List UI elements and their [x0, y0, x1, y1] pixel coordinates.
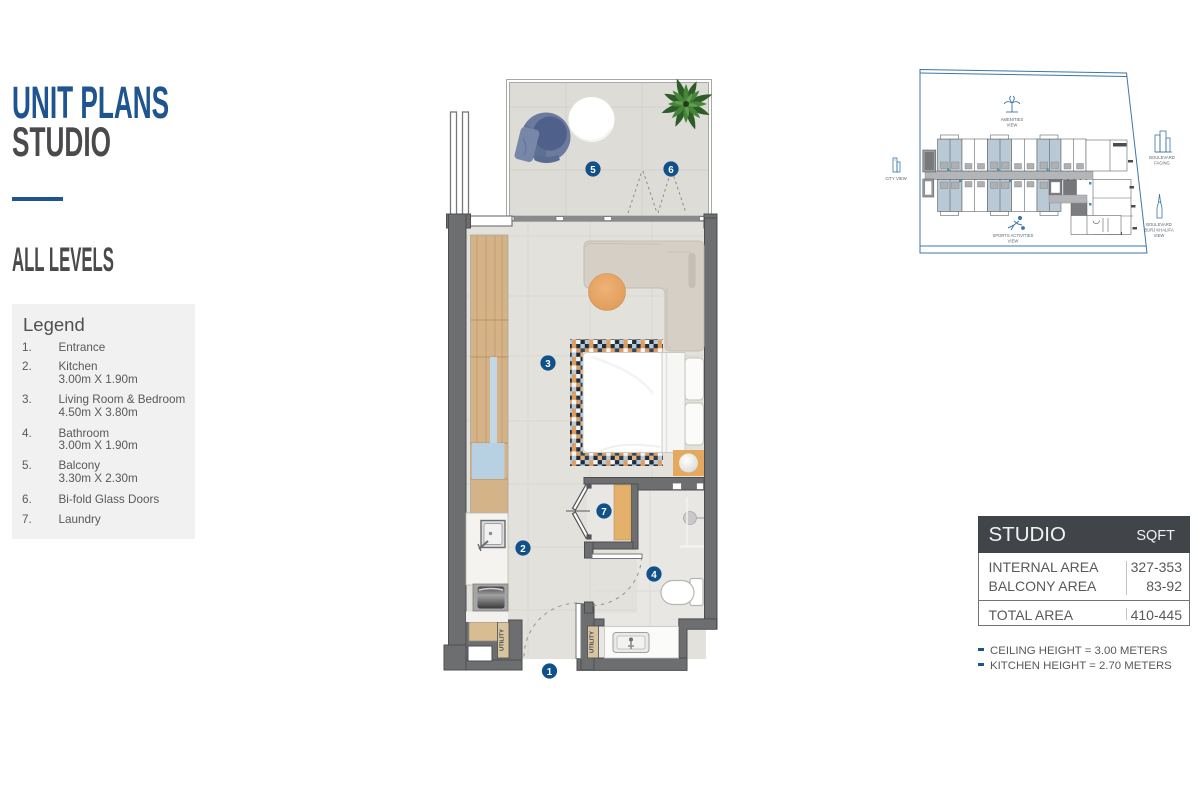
svg-text:AMENITIES: AMENITIES	[1001, 117, 1024, 122]
svg-text:SPORTS ACTIVITIES: SPORTS ACTIVITIES	[993, 233, 1034, 238]
svg-text:BOULEVARD: BOULEVARD	[1149, 155, 1175, 160]
svg-text:6: 6	[668, 165, 674, 176]
svg-text:CITY VIEW: CITY VIEW	[885, 176, 906, 181]
svg-text:2: 2	[520, 544, 526, 555]
svg-text:VIEW: VIEW	[1008, 239, 1019, 244]
svg-text:7: 7	[601, 507, 607, 518]
svg-text:VIEW: VIEW	[1154, 233, 1165, 238]
svg-text:VIEW: VIEW	[1007, 123, 1018, 128]
svg-text:UTILITY: UTILITY	[589, 631, 595, 653]
svg-text:FACING: FACING	[1154, 161, 1170, 166]
svg-text:BOULEVARD: BOULEVARD	[1146, 222, 1172, 227]
svg-text:5: 5	[590, 165, 596, 176]
svg-text:BURJ KHALIFA: BURJ KHALIFA	[1144, 228, 1174, 233]
svg-text:UTILITY: UTILITY	[500, 629, 506, 651]
svg-text:3: 3	[545, 359, 551, 370]
svg-text:1: 1	[547, 667, 553, 678]
svg-text:4: 4	[651, 570, 657, 581]
